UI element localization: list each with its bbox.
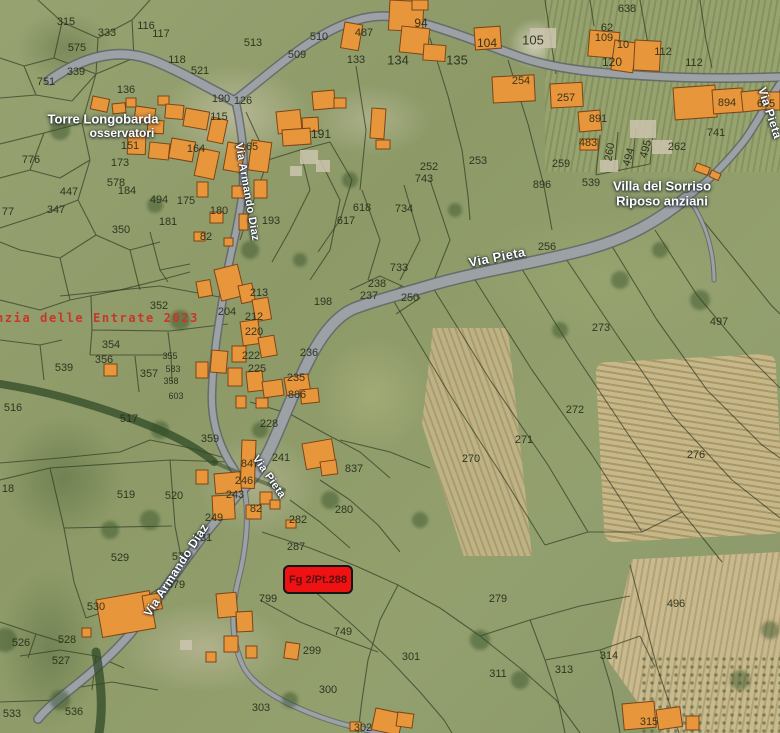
parcel-number: 133: [347, 54, 365, 66]
parcel-number: 583: [165, 364, 180, 374]
watermark-text: nzia delle Entrate 2023: [0, 311, 199, 325]
parcel-number: 282: [289, 514, 307, 526]
parcel-number: 315: [57, 16, 75, 28]
parcel-number: 333: [98, 27, 116, 39]
parcel-number: 358: [163, 376, 178, 386]
parcel-number: 190: [212, 93, 230, 105]
parcel-number: 357: [140, 368, 158, 380]
parcel-number: 134: [387, 53, 409, 68]
parcel-number: 733: [390, 262, 408, 274]
parcel-number: 198: [314, 296, 332, 308]
parcel-number: 222: [242, 350, 260, 362]
parcel-number: 575: [68, 42, 86, 54]
parcel-number: 238: [368, 278, 386, 290]
parcel-number: 287: [287, 541, 305, 553]
parcel-number: 112: [654, 46, 672, 58]
parcel-number: 645: [757, 98, 775, 110]
parcel-number: 193: [262, 215, 280, 227]
parcel-number: 213: [250, 287, 268, 299]
parcel-number: 220: [245, 326, 263, 338]
parcel-number: 520: [165, 490, 183, 502]
parcel-number: 496: [667, 598, 685, 610]
parcel-number: 847: [241, 458, 259, 470]
parcel-number: 10: [617, 39, 629, 51]
parcel-number: 257: [557, 92, 575, 104]
parcel-number: 519: [117, 489, 135, 501]
parcel-number: 527: [52, 655, 70, 667]
parcel-number: 109: [595, 32, 613, 44]
parcel-number: 62: [601, 22, 613, 34]
parcel-number: 262: [668, 141, 686, 153]
parcel-number: 271: [515, 434, 533, 446]
parcel-number: 77: [2, 206, 14, 218]
parcel-number: 356: [95, 354, 113, 366]
labels-layer: 3153335753397515131161171185211361901261…: [0, 0, 780, 733]
parcel-number: 118: [168, 54, 186, 66]
parcel-number: 350: [112, 224, 130, 236]
parcel-number: 539: [582, 177, 600, 189]
parcel-number: 734: [395, 203, 413, 215]
parcel-number: 254: [512, 75, 530, 87]
street-name-label: Via Armando Diaz: [141, 521, 211, 619]
parcel-number: 135: [446, 53, 468, 68]
parcel-number: 617: [337, 215, 355, 227]
parcel-number: 618: [353, 202, 371, 214]
parcel-number: 276: [687, 449, 705, 461]
parcel-number: 82: [250, 503, 262, 515]
parcel-number: 517: [120, 413, 138, 425]
parcel-number: 536: [65, 706, 83, 718]
parcel-number: 603: [168, 391, 183, 401]
parcel-number: 273: [592, 322, 610, 334]
parcel-number: 526: [12, 637, 30, 649]
parcel-number: 837: [345, 463, 363, 475]
parcel-number: 243: [226, 489, 244, 501]
parcel-number: 483: [579, 137, 597, 149]
parcel-number: 896: [533, 179, 551, 191]
parcel-number: 886: [288, 389, 306, 401]
parcel-number: 303: [252, 702, 270, 714]
parcel-number: 530: [87, 601, 105, 613]
parcel-number: 311: [489, 668, 507, 680]
parcel-number: 225: [248, 363, 266, 375]
parcel-number: 120: [602, 55, 622, 69]
street-name-label: Via Pieta: [467, 244, 526, 270]
parcel-number: 280: [335, 504, 353, 516]
parcel-number: 151: [121, 140, 139, 152]
parcel-number: 579: [167, 579, 185, 591]
parcel-number: 494: [621, 147, 637, 168]
parcel-number: 115: [210, 111, 228, 123]
parcel-number: 638: [618, 3, 636, 15]
parcel-number: 447: [60, 186, 78, 198]
parcel-number: 578: [172, 551, 190, 563]
place-name-label: Torre Longobarda: [48, 112, 159, 127]
parcel-number: 300: [319, 684, 337, 696]
parcel-number: 252: [420, 161, 438, 173]
parcel-number: 237: [360, 290, 378, 302]
parcel-number: 165: [240, 141, 258, 153]
parcel-number: 256: [538, 241, 556, 253]
parcel-number: 799: [259, 593, 277, 605]
parcel-number: 497: [710, 316, 728, 328]
parcel-number: 136: [117, 84, 135, 96]
parcel-number: 539: [55, 362, 73, 374]
parcel-number: 236: [300, 347, 318, 359]
parcel-number: 521: [191, 65, 209, 77]
parcel-number: 246: [235, 475, 253, 487]
parcel-number: 495: [638, 139, 654, 160]
parcel-number: 104: [477, 36, 497, 50]
parcel-number: 249: [205, 512, 223, 524]
parcel-number: 339: [67, 66, 85, 78]
parcel-number: 235: [287, 372, 305, 384]
parcel-number: 302: [354, 722, 372, 733]
parcel-number: 116: [137, 20, 155, 32]
parcel-number: 181: [159, 216, 177, 228]
parcel-number: 82: [200, 231, 212, 243]
parcel-number: 260: [602, 142, 617, 162]
parcel-number: 487: [355, 27, 373, 39]
street-name-label: Via Armando Diaz: [232, 142, 261, 242]
parcel-number: 751: [37, 76, 55, 88]
parcel-number: 112: [685, 57, 703, 69]
parcel-number: 270: [462, 453, 480, 465]
place-name-label: Riposo anziani: [616, 194, 708, 209]
parcel-number: 299: [303, 645, 321, 657]
parcel-number: 204: [218, 306, 236, 318]
parcel-number: 94: [414, 16, 427, 30]
parcel-number: 272: [566, 404, 584, 416]
street-name-label: Via Pietà: [755, 85, 780, 140]
parcel-number: 191: [311, 127, 331, 141]
parcel-number: 509: [288, 49, 306, 61]
satellite-cadastral-map[interactable]: 3153335753397515131161171185211361901261…: [0, 0, 780, 733]
parcel-number: 253: [469, 155, 487, 167]
parcel-number: 117: [152, 28, 170, 40]
parcel-number: 513: [244, 37, 262, 49]
parcel-number: 184: [118, 185, 136, 197]
parcel-number: 313: [555, 664, 573, 676]
parcel-number: 533: [3, 708, 21, 720]
parcel-number: 891: [589, 113, 607, 125]
parcel-number: 315: [640, 716, 658, 728]
parcel-number: 180: [210, 205, 228, 217]
parcel-number: 228: [260, 418, 278, 430]
parcel-number: 529: [111, 552, 129, 564]
parcel-number: 126: [234, 95, 252, 107]
parcel-number: 250: [401, 292, 419, 304]
street-name-label: Via Pieta: [250, 453, 288, 500]
parcel-number: 241: [272, 452, 290, 464]
parcel-number: 741: [707, 127, 725, 139]
parcel-number: 528: [58, 634, 76, 646]
parcel-number: 105: [522, 33, 544, 48]
parcel-number: 894: [718, 97, 736, 109]
parcel-number: 510: [310, 31, 328, 43]
highlight-parcel-label: Fg 2/Pt.288: [289, 574, 347, 586]
parcel-number: 776: [22, 154, 40, 166]
parcel-number: 212: [245, 311, 263, 323]
parcel-number: 749: [334, 626, 352, 638]
parcel-number: 355: [162, 351, 177, 361]
highlight-parcel-marker[interactable]: Fg 2/Pt.288: [283, 565, 353, 594]
parcel-number: 164: [187, 143, 205, 155]
parcel-number: 743: [415, 173, 433, 185]
parcel-number: 354: [102, 339, 120, 351]
parcel-number: 279: [489, 593, 507, 605]
place-name-label: Villa del Sorriso: [613, 179, 711, 194]
parcel-number: 173: [111, 157, 129, 169]
parcel-number: 494: [150, 194, 168, 206]
parcel-number: 314: [600, 650, 618, 662]
parcel-number: 516: [4, 402, 22, 414]
parcel-number: 347: [47, 204, 65, 216]
parcel-number: 359: [201, 433, 219, 445]
parcel-number: 175: [177, 195, 195, 207]
parcel-number: 259: [552, 158, 570, 170]
place-name-label: osservatori: [90, 126, 155, 140]
parcel-number: 531: [194, 532, 212, 544]
parcel-number: 578: [107, 177, 125, 189]
parcel-number: 18: [2, 483, 14, 495]
parcel-number: 301: [402, 651, 420, 663]
